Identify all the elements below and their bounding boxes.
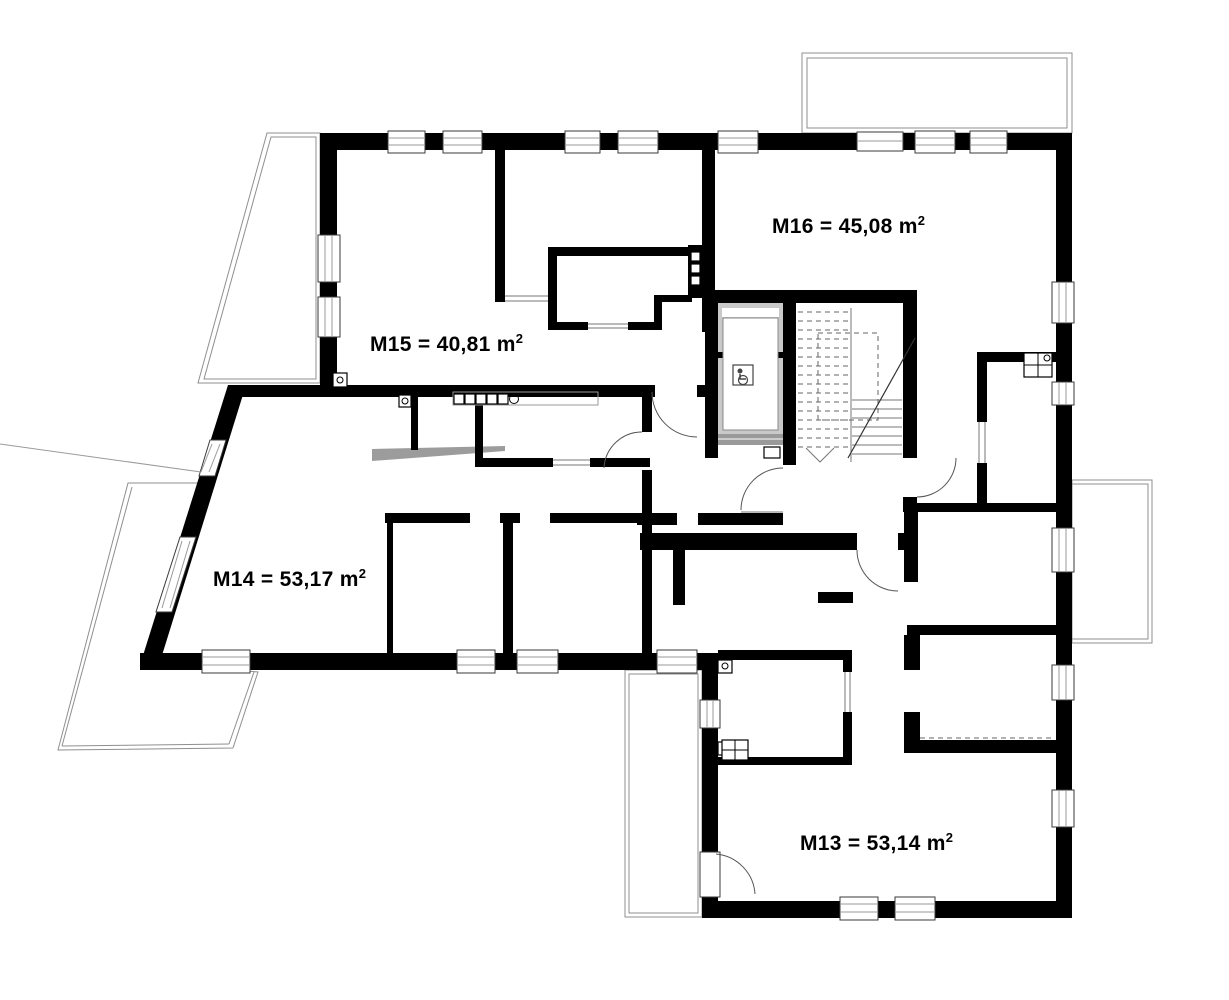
apartment-label-m16: M16 = 45,08 m2 bbox=[772, 213, 925, 239]
apartment-label-text: M16 = 45,08 m bbox=[772, 215, 918, 238]
door-m16-kitchen bbox=[917, 458, 956, 497]
balcony-outlines bbox=[58, 53, 1152, 917]
elevator bbox=[718, 318, 783, 458]
stair-upper-flight-dashed bbox=[818, 333, 878, 420]
apartment-label-text: M15 = 40,81 m bbox=[370, 333, 516, 356]
apartment-label-m14: M14 = 53,17 m2 bbox=[213, 566, 366, 592]
balcony-bottom-center bbox=[625, 670, 702, 917]
floor-plan: M13 = 53,14 m2 M14 = 53,17 m2 M15 = 40,8… bbox=[0, 0, 1229, 1000]
balcony-door-m13 bbox=[700, 852, 720, 897]
shaft-duct bbox=[691, 247, 700, 286]
balcony-top-left bbox=[198, 133, 320, 383]
door-m13-balcony bbox=[716, 854, 755, 894]
staircase bbox=[798, 308, 915, 462]
door-m13-entry bbox=[857, 550, 898, 591]
floor-plan-drawing bbox=[0, 0, 1229, 1000]
superscript: 2 bbox=[359, 566, 367, 581]
sink-m16 bbox=[1024, 353, 1052, 377]
apartment-label-text: M13 = 53,14 m bbox=[800, 832, 946, 855]
superscript: 2 bbox=[946, 830, 954, 845]
superscript: 2 bbox=[918, 213, 926, 228]
apartment-label-text: M14 = 53,17 m bbox=[213, 568, 359, 591]
apartment-label-m15: M15 = 40,81 m2 bbox=[370, 331, 523, 357]
balcony-top-right bbox=[802, 53, 1072, 133]
balcony-right bbox=[1072, 480, 1152, 643]
door-arcs bbox=[604, 392, 956, 894]
stair-treads-dashed bbox=[798, 312, 850, 447]
walls bbox=[140, 133, 1072, 918]
elevator-cabin bbox=[723, 318, 778, 430]
superscript: 2 bbox=[516, 331, 524, 346]
sink-m13 bbox=[722, 740, 748, 760]
door-m15-entry bbox=[652, 392, 697, 437]
apartment-label-m13: M13 = 53,14 m2 bbox=[800, 830, 953, 856]
sloped-wall bbox=[140, 385, 246, 665]
stair-down-arrow-icon bbox=[806, 448, 834, 462]
stair-treads-solid bbox=[852, 400, 902, 454]
door-lobby bbox=[741, 468, 783, 510]
